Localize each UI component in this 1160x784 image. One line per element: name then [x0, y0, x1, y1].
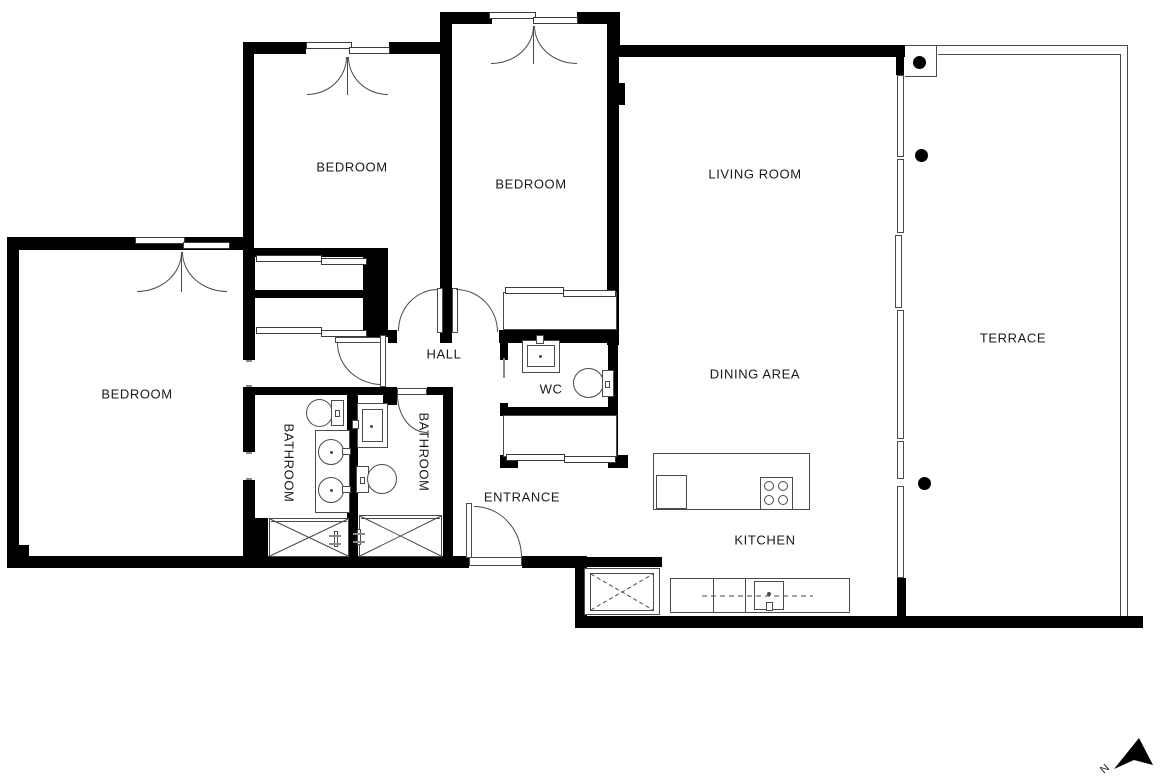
wall	[243, 387, 255, 452]
counter-divider	[713, 578, 714, 613]
sink-drain	[370, 425, 373, 428]
door-swing-arc	[456, 289, 498, 332]
kitchen-island-sink	[656, 475, 687, 509]
north-arrow-icon: N	[1098, 738, 1153, 776]
door-leaf	[397, 388, 427, 395]
sink-faucet	[536, 335, 544, 344]
wall	[243, 480, 255, 520]
terrace-outline	[936, 45, 937, 77]
shower-valve-tick	[329, 535, 341, 537]
room-label-terrace: TERRACE	[980, 331, 1046, 346]
room-label-bathroom-left: BATHROOM	[282, 424, 297, 503]
room-label-living-room: LIVING ROOM	[708, 167, 801, 182]
door-jamb	[503, 358, 505, 378]
glazed-wall-segment	[897, 486, 904, 578]
stove-burner	[778, 495, 788, 505]
wall	[7, 237, 19, 568]
column	[918, 477, 931, 490]
column	[915, 149, 928, 162]
door-jamb	[246, 385, 252, 387]
wall	[388, 330, 397, 343]
stove-burner	[764, 495, 774, 505]
sink-drain	[330, 451, 333, 454]
wall	[243, 518, 268, 558]
room-label-wc: WC	[540, 382, 563, 397]
toilet-button	[335, 410, 340, 417]
closet-sliding-door	[256, 255, 322, 262]
room-label-bedroom-top-left: BEDROOM	[316, 160, 387, 175]
wall	[358, 387, 383, 395]
glazed-wall-segment	[897, 159, 904, 233]
wall	[587, 557, 662, 567]
shower-valve-tick	[353, 541, 365, 543]
door-jamb	[246, 452, 252, 454]
closet-sliding-door	[321, 330, 367, 337]
appliance-inner	[590, 573, 654, 611]
wall	[443, 387, 453, 567]
window-swing-arc	[348, 57, 388, 95]
window-mullion	[347, 57, 348, 95]
shower-valve-tick	[353, 533, 365, 535]
wall	[896, 55, 904, 75]
wall	[575, 616, 1143, 628]
closet-sliding-door	[563, 290, 616, 297]
shower-edge	[271, 521, 347, 522]
wall	[243, 42, 254, 250]
toilet-bowl	[367, 464, 397, 494]
sink-drain	[767, 592, 771, 596]
window-swing-arc	[534, 26, 577, 64]
entrance-door-threshold	[469, 557, 522, 566]
toilet-bowl	[573, 368, 604, 398]
closet-sliding-door	[564, 456, 616, 463]
door-frame	[380, 335, 386, 387]
wall	[607, 45, 905, 57]
door-jamb	[246, 360, 252, 362]
terrace-outline	[905, 76, 937, 77]
window-swing-arc	[137, 252, 182, 292]
window	[533, 17, 578, 24]
door-swing-arc	[337, 343, 382, 385]
window-mullion	[181, 252, 182, 292]
wardrobe	[503, 292, 617, 330]
window-swing-arc	[182, 252, 227, 292]
closet	[503, 415, 617, 457]
sink-drain	[330, 489, 333, 492]
shower-tray	[359, 515, 442, 557]
window-swing-arc	[491, 26, 534, 64]
terrace-outline	[905, 45, 1128, 46]
wall	[897, 578, 906, 616]
room-label-bathroom-right: BATHROOM	[417, 413, 432, 492]
closet-sliding-door	[506, 454, 565, 461]
stove-burner	[764, 481, 774, 491]
closet-sliding-door	[505, 287, 564, 294]
north-label: N	[1098, 762, 1112, 776]
room-label-hall: HALL	[427, 347, 462, 362]
glazed-wall-segment	[897, 310, 904, 439]
sink-drain	[539, 355, 542, 358]
wall	[255, 290, 363, 298]
sink-faucet	[342, 486, 351, 493]
door-leaf	[466, 503, 472, 558]
toilet-button	[360, 477, 365, 484]
toilet-bowl	[306, 399, 333, 427]
toilet-button	[605, 381, 610, 388]
wall	[619, 83, 625, 105]
window	[306, 42, 352, 49]
terrace-outline	[938, 54, 1121, 55]
room-label-bedroom-top-middle: BEDROOM	[495, 177, 566, 192]
window	[489, 12, 536, 19]
sink-faucet	[342, 448, 351, 455]
floor-plan: N BEDROOM BEDROOM LIVING ROOM BEDROOM HA…	[0, 0, 1160, 784]
glazed-wall-segment	[895, 235, 902, 308]
counter-divider	[745, 578, 746, 613]
glazed-wall-segment	[897, 75, 904, 157]
window	[183, 242, 230, 249]
wall	[7, 556, 469, 568]
wall	[243, 250, 255, 360]
column	[913, 56, 926, 69]
window-mullion	[533, 26, 534, 64]
door-jamb	[246, 478, 252, 480]
window	[349, 47, 390, 54]
room-label-kitchen: KITCHEN	[734, 533, 795, 548]
closet-sliding-door	[321, 258, 367, 265]
shower-valve-tick	[329, 543, 341, 545]
room-label-entrance: ENTRANCE	[484, 490, 560, 505]
terrace-outline	[1120, 54, 1121, 616]
closet-sliding-door	[256, 327, 322, 334]
sink-faucet	[352, 420, 359, 429]
room-label-bedroom-left: BEDROOM	[101, 387, 172, 402]
sink-faucet	[766, 602, 773, 611]
door-swing-arc	[398, 289, 438, 331]
glazed-wall-segment	[897, 441, 904, 479]
window-swing-arc	[307, 57, 347, 95]
shower-edge	[361, 518, 440, 519]
window	[135, 237, 185, 244]
room-label-dining-area: DINING AREA	[710, 367, 800, 382]
stove-burner	[778, 481, 788, 491]
door-swing-arc	[474, 506, 522, 557]
wall	[245, 387, 347, 395]
terrace-outline	[1127, 45, 1128, 616]
